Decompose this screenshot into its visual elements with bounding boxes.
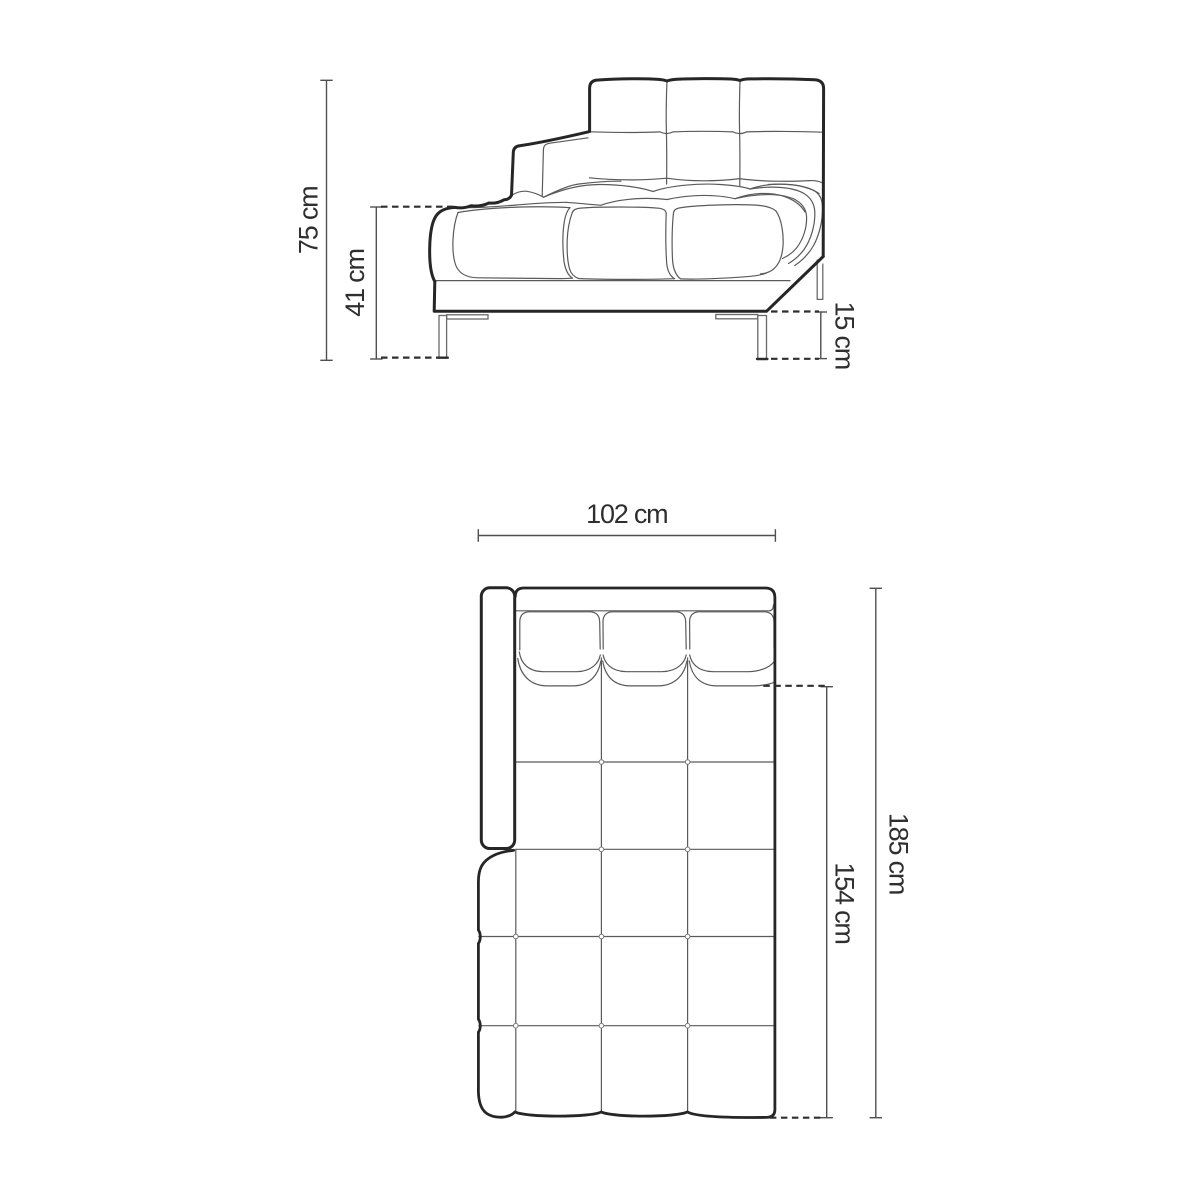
svg-text:154 cm: 154 cm (830, 862, 860, 943)
svg-text:75 cm: 75 cm (294, 187, 324, 255)
svg-text:102 cm: 102 cm (586, 499, 667, 529)
svg-text:41 cm: 41 cm (340, 249, 370, 317)
svg-text:15 cm: 15 cm (830, 302, 860, 370)
svg-text:185 cm: 185 cm (884, 813, 914, 894)
